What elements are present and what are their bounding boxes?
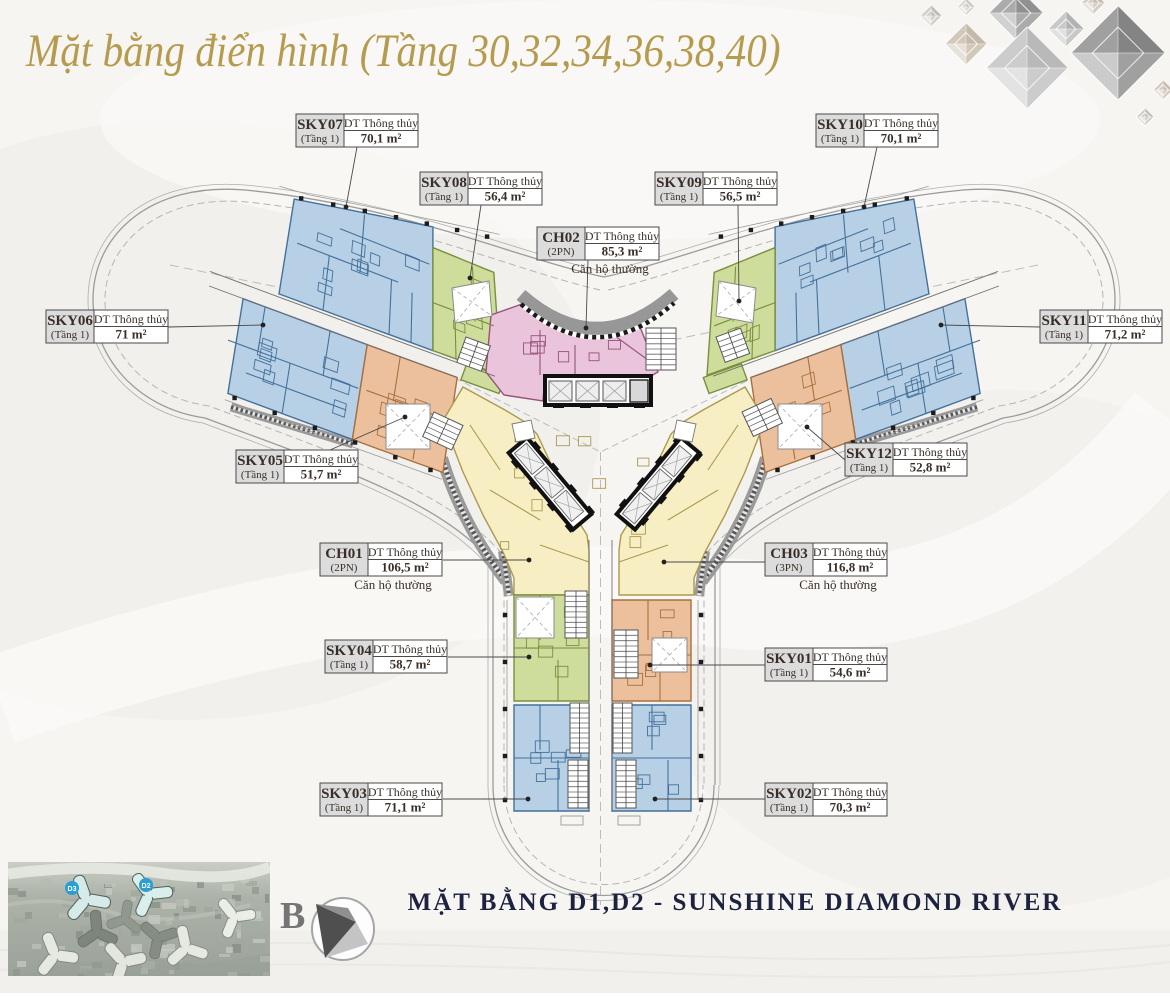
svg-text:(Tầng 1): (Tầng 1) [51,329,90,341]
svg-text:DT Thông thủy: DT Thông thủy [468,174,542,188]
svg-text:DT Thông thủy: DT Thông thủy [813,545,887,559]
svg-text:(2PN): (2PN) [331,562,358,574]
svg-text:(Tầng 1): (Tầng 1) [241,469,280,481]
svg-text:CH01: CH01 [325,546,363,562]
svg-text:(Tầng 1): (Tầng 1) [425,191,464,203]
svg-text:56,5 m²: 56,5 m² [720,189,761,204]
svg-text:(Tầng 1): (Tầng 1) [850,462,889,474]
svg-text:DT Thông thủy: DT Thông thủy [368,545,442,559]
svg-text:SKY08: SKY08 [421,175,467,191]
svg-text:70,1 m²: 70,1 m² [881,131,922,146]
svg-text:DT Thông thủy: DT Thông thủy [344,116,418,130]
svg-text:51,7 m²: 51,7 m² [301,467,342,482]
svg-text:SKY05: SKY05 [237,453,283,469]
svg-text:71,1 m²: 71,1 m² [385,800,426,815]
svg-text:DT Thông thủy: DT Thông thủy [813,650,887,664]
svg-text:(Tầng 1): (Tầng 1) [330,659,369,671]
svg-text:SKY11: SKY11 [1041,313,1086,329]
svg-text:85,3 m²: 85,3 m² [602,244,643,259]
svg-text:SKY06: SKY06 [47,313,93,329]
svg-text:DT Thông thủy: DT Thông thủy [373,642,447,656]
svg-text:SKY07: SKY07 [297,117,343,133]
svg-text:(Tầng 1): (Tầng 1) [325,802,364,814]
svg-text:SKY12: SKY12 [846,446,892,462]
svg-text:116,8 m²: 116,8 m² [827,560,874,575]
svg-text:CH02: CH02 [542,230,580,246]
svg-text:DT Thông thủy: DT Thông thủy [893,445,967,459]
svg-text:SKY10: SKY10 [817,117,863,133]
svg-text:D2: D2 [142,883,151,890]
svg-text:Căn hộ thường: Căn hộ thường [354,577,432,592]
svg-text:(2PN): (2PN) [548,246,575,258]
svg-text:70,1 m²: 70,1 m² [361,131,402,146]
svg-text:SKY03: SKY03 [321,786,367,802]
svg-text:SKY04: SKY04 [326,643,372,659]
svg-text:B: B [280,895,305,937]
svg-text:(3PN): (3PN) [776,562,803,574]
svg-text:54,6 m²: 54,6 m² [830,665,871,680]
svg-text:DT Thông thủy: DT Thông thủy [284,452,358,466]
svg-text:CH03: CH03 [770,546,808,562]
svg-text:52,8 m²: 52,8 m² [910,460,951,475]
svg-text:(Tầng 1): (Tầng 1) [821,133,860,145]
svg-text:DT Thông thủy: DT Thông thủy [864,116,938,130]
svg-text:DT Thông thủy: DT Thông thủy [94,312,168,326]
svg-text:(Tầng 1): (Tầng 1) [770,667,809,679]
svg-text:Căn hộ thường: Căn hộ thường [571,261,649,276]
svg-text:DT Thông thủy: DT Thông thủy [585,229,659,243]
svg-text:(Tầng 1): (Tầng 1) [660,191,699,203]
svg-text:58,7 m²: 58,7 m² [390,657,431,672]
svg-text:D3: D3 [68,886,77,893]
svg-text:106,5 m²: 106,5 m² [381,560,428,575]
svg-text:(Tầng 1): (Tầng 1) [770,802,809,814]
svg-text:(Tầng 1): (Tầng 1) [301,133,340,145]
svg-text:(Tầng 1): (Tầng 1) [1045,329,1084,341]
svg-text:56,4 m²: 56,4 m² [485,189,526,204]
svg-text:MẶT BẰNG D1,D2 - SUNSHINE DIAM: MẶT BẰNG D1,D2 - SUNSHINE DIAMOND RIVER [408,887,1063,916]
svg-text:DT Thông thủy: DT Thông thủy [703,174,777,188]
svg-text:DT Thông thủy: DT Thông thủy [368,785,442,799]
svg-text:Mặt bằng điển hình (Tầng 30,32: Mặt bằng điển hình (Tầng 30,32,34,36,38,… [25,26,780,77]
svg-text:SKY02: SKY02 [766,786,812,802]
svg-text:SKY01: SKY01 [766,651,812,667]
svg-text:70,3 m²: 70,3 m² [830,800,871,815]
svg-text:71,2 m²: 71,2 m² [1105,327,1146,342]
svg-text:SKY09: SKY09 [656,175,702,191]
svg-text:DT Thông thủy: DT Thông thủy [813,785,887,799]
svg-text:DT Thông thủy: DT Thông thủy [1088,312,1162,326]
svg-text:71 m²: 71 m² [116,327,147,342]
svg-text:Căn hộ thường: Căn hộ thường [799,577,877,592]
